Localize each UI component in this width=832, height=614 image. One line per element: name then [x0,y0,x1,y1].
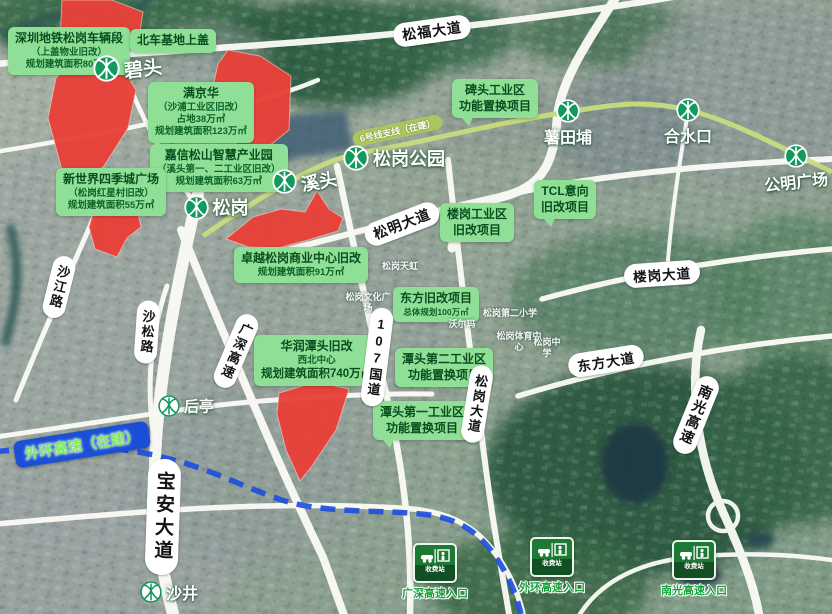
toll-booth-icon [419,547,451,565]
project-label-manjinghua: 满京华（沙浦工业区旧改）占地38万㎡规划建筑面积123万㎡ [148,82,254,143]
project-label-line: 华润潭头旧改 [261,339,372,355]
project-label-line: （溪头第一、二工业区旧改） [157,164,281,176]
label-pointer [543,218,555,227]
toll-entrance-label: 南光高速入口 [661,582,727,598]
project-label-line: 楼岗工业区 [447,207,507,223]
project-label-new-world-plaza: 新世界四季城广场（松岗红星村旧改）规划建筑面积55万㎡ [56,168,166,216]
metro-station-name: 合水口 [664,123,712,147]
toll-station-caption: 收费站 [415,565,455,581]
project-label-line: 功能置换项目 [380,421,464,437]
project-label-line: 潭头第一工业区 [380,405,464,421]
shenzhen-metro-logo-icon [158,395,180,417]
road-label-nanguang-expressway: 南光高速 [670,372,723,457]
project-label-line: 规划建筑面积63万㎡ [157,176,281,188]
project-label-line: 功能置换项目 [459,99,531,115]
place-label-songgang-culture-square: 松岗文化广场 [345,292,391,314]
metro-station-shutianpu: 薯田埔 [556,99,580,123]
project-label-line: （沙浦工业区旧改） [155,102,247,114]
project-label-line: TCL意向 [541,184,589,200]
metro-station-name: 公明广场 [763,166,829,197]
label-pointer [382,439,394,448]
toll-booth-icon [536,541,568,559]
shenzhen-metro-logo-icon [272,169,297,194]
project-label-line: 深圳地铁松岗车辆段 [15,31,123,47]
place-label-songgang-no2-primary: 松岗第二小学 [468,308,552,319]
project-label-line: 东方旧改项目 [400,291,472,307]
satellite-redevelopment-map: 外环高速（在建） 6号线支线（在建） 深圳地铁松岗车辆段（上盖物业旧改）规划建筑… [0,0,832,614]
shenzhen-metro-logo-icon [343,145,369,171]
metro-station-name: 溪头 [299,165,339,197]
project-label-zhuoyue-center: 卓越松岗商业中心旧改规划建筑面积91万㎡ [234,247,368,283]
road-label-lougang-avenue: 楼岗大道 [623,259,700,288]
project-label-line: 旧改项目 [447,223,507,239]
project-label-line: 旧改项目 [541,200,589,216]
project-label-line: 规划建筑面积740万㎡ [261,367,372,382]
metro-station-name: 松岗公园 [373,145,445,171]
project-label-beiche-base: 北车基地上盖 [130,29,216,53]
shenzhen-metro-logo-icon [184,195,209,220]
road-label-shasong-road: 沙松路 [133,300,160,364]
place-label-songgang-middle-school: 松岗中学 [530,337,564,359]
project-label-line: 碑头工业区 [459,83,531,99]
toll-entrance-nanguang-entrance: 收费站南光高速入口 [661,540,727,598]
place-label-walmart: 沃尔玛 [442,319,482,330]
toll-station-caption: 收费站 [532,559,572,575]
toll-entrance-waihuan-entrance: 收费站外环高速入口 [519,537,585,595]
road-label-dongfang-avenue: 东方大道 [567,343,646,379]
metro-station-bitou: 碧头 [93,55,120,82]
project-label-line: 西北中心 [261,355,372,367]
shenzhen-metro-logo-icon [556,99,580,123]
road-label-shajiang-road: 沙江路 [40,254,78,321]
place-label-songgang-tianhong: 松岗天虹 [370,261,430,272]
project-label-line: 潭头第二工业区 [402,352,486,368]
toll-icon-box: 收费站 [413,543,457,583]
project-label-line: 规划建筑面积55万㎡ [63,200,159,212]
project-label-huarun-tantou: 华润潭头旧改西北中心规划建筑面积740万㎡ [254,335,379,386]
project-label-line: （松岗红星村旧改） [63,188,159,200]
project-label-line: 北车基地上盖 [137,33,209,49]
shenzhen-metro-logo-icon [140,581,162,603]
shenzhen-metro-logo-icon [93,55,120,82]
metro-station-name: 薯田埔 [544,124,592,148]
project-label-line: 嘉信松山智慧产业园 [157,148,281,164]
project-label-beitou-industrial: 碑头工业区功能置换项目 [452,79,538,118]
project-label-tcl: TCL意向旧改项目 [534,180,596,219]
project-label-line: 规划建筑面积123万㎡ [155,126,247,138]
metro-station-heshuikou: 合水口 [676,98,700,122]
toll-icon-box: 收费站 [672,540,716,580]
road-label-g107: 107国道 [360,306,395,407]
metro-station-name: 碧头 [122,52,163,83]
project-label-line: 规划建筑面积91万㎡ [241,267,361,279]
label-pointer [461,117,473,126]
project-label-line: 占地38万㎡ [155,114,247,126]
project-label-line: 卓越松岗商业中心旧改 [241,251,361,267]
toll-entrance-guangshen-entrance: 收费站广深高速入口 [402,543,468,601]
shenzhen-metro-logo-icon [676,98,700,122]
project-label-dongfang: 东方旧改项目总体规划100万㎡ [393,287,479,322]
project-label-line: 满京华 [155,86,247,102]
metro-station-xitou: 溪头 [272,169,297,194]
project-label-tantou-no1: 潭头第一工业区功能置换项目 [373,401,471,440]
toll-entrance-label: 广深高速入口 [402,585,468,601]
metro-station-houting: 后亭 [158,395,180,417]
annotation-overlay: 外环高速（在建） 6号线支线（在建） 深圳地铁松岗车辆段（上盖物业旧改）规划建筑… [0,0,832,614]
outer-ring-expressway-banner: 外环高速（在建） [13,421,152,469]
toll-entrance-label: 外环高速入口 [519,579,585,595]
metro-station-shajing: 沙井 [140,581,162,603]
metro-station-songgang: 松岗 [184,195,209,220]
project-label-lougang-industrial: 楼岗工业区旧改项目 [440,203,514,242]
road-label-baoan-avenue: 宝安大道 [144,458,181,575]
road-label-songming-avenue: 松明大道 [361,199,442,249]
metro-station-gongming-square: 公明广场 [784,144,808,168]
road-label-songfu-avenue: 松福大道 [392,14,473,49]
toll-station-caption: 收费站 [674,562,714,578]
metro-station-name: 后亭 [184,396,214,417]
metro-station-name: 沙井 [166,580,198,604]
toll-booth-icon [678,544,710,562]
project-label-jiaxin-songshan: 嘉信松山智慧产业园（溪头第一、二工业区旧改）规划建筑面积63万㎡ [150,144,288,192]
shenzhen-metro-logo-icon [784,144,808,168]
metro-station-songgang-park: 松岗公园 [343,145,369,171]
metro-station-name: 松岗 [213,194,249,220]
toll-icon-box: 收费站 [530,537,574,577]
project-label-line: 新世界四季城广场 [63,172,159,188]
project-label-line: 总体规划100万㎡ [400,307,472,318]
metro-line6-branch-label: 6号线支线（在建） [351,114,443,148]
